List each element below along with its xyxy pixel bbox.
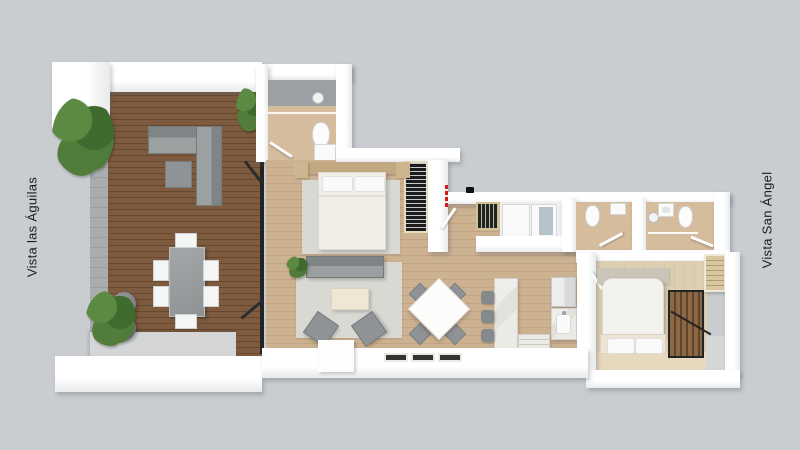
- closet-shelves: [704, 254, 726, 292]
- tv-console: [318, 340, 354, 372]
- outdoor-dining-chair: [153, 286, 169, 307]
- outdoor-coffee-table: [165, 161, 192, 188]
- duvet-fold: [319, 195, 385, 197]
- outdoor-dining-chair: [175, 314, 197, 329]
- faucet-icon: [562, 311, 566, 315]
- terrace-bottom-wall: [55, 356, 262, 392]
- shower-glass-line: [268, 112, 336, 114]
- bathroom2-left-wall: [562, 198, 576, 252]
- plant: [86, 290, 136, 346]
- entry-marker-icon: [445, 185, 448, 189]
- sink: [610, 203, 626, 215]
- bar-stool: [481, 310, 494, 323]
- living-sofa: [306, 256, 384, 278]
- bar-stool: [481, 329, 494, 342]
- coffee-table: [331, 288, 369, 310]
- outdoor-dining-chair: [175, 233, 197, 248]
- pillow: [635, 338, 663, 354]
- bed: [602, 278, 664, 338]
- louver-window: [668, 290, 704, 358]
- outdoor-dining-chair: [153, 260, 169, 281]
- bathroom-wall: [256, 64, 268, 162]
- pillow: [322, 176, 353, 192]
- washer: [502, 204, 530, 238]
- kitchen-island: [494, 278, 518, 353]
- bed: [318, 172, 386, 250]
- camera-icon: [466, 187, 474, 193]
- wine-rack: [476, 202, 500, 230]
- skylight-window: [384, 353, 408, 362]
- nightstand: [396, 162, 410, 178]
- skylight-window: [411, 353, 435, 362]
- utility-cabinet: [531, 204, 557, 238]
- left-view-label: Vista las Águilas: [25, 177, 40, 277]
- floorplan-scene: Vista las Águilas Vista San Ángel: [0, 0, 800, 450]
- skylight-window: [438, 353, 462, 362]
- nightstand: [294, 162, 308, 178]
- entry-marker-icon: [445, 191, 448, 195]
- kitchen-sink: [556, 314, 571, 334]
- shower-glass-line: [648, 232, 698, 234]
- bathroom-divider-wall: [632, 198, 646, 252]
- bar-stool: [481, 291, 494, 304]
- outdoor-dining-chair: [203, 260, 219, 281]
- outdoor-dining-table: [169, 247, 205, 317]
- right-outer-wall: [714, 192, 730, 254]
- pillow: [354, 176, 385, 192]
- sink: [658, 203, 674, 217]
- appliance-door: [539, 207, 553, 235]
- shower-head-icon: [312, 92, 324, 104]
- toilet: [585, 205, 600, 227]
- right-outer-wall: [725, 252, 740, 376]
- right-view-label: Vista San Ángel: [760, 172, 775, 269]
- shower-accent-wall: [268, 80, 336, 106]
- entry-marker-icon: [445, 203, 448, 207]
- toilet: [678, 206, 693, 228]
- outdoor-sofa: [196, 126, 222, 206]
- entry-marker-icon: [445, 197, 448, 201]
- window-wall-frame: [260, 158, 264, 354]
- plant: [286, 256, 308, 278]
- plant: [52, 96, 114, 176]
- refrigerator: [551, 277, 576, 307]
- outdoor-dining-chair: [203, 286, 219, 307]
- pillow: [607, 338, 635, 354]
- bedroom2-bottom-wall: [586, 370, 740, 388]
